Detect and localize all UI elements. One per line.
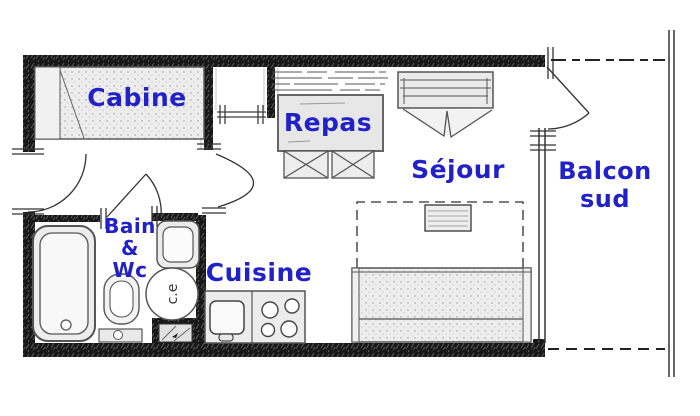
balcon-label-line2: sud <box>544 185 666 213</box>
room-label-cabine: Cabine <box>57 84 217 111</box>
sofa-armrest-left <box>352 268 359 342</box>
closet-rod <box>217 105 266 124</box>
balcony-railing <box>669 30 674 377</box>
room-label-repas: Repas <box>268 109 388 136</box>
sofa-bed <box>352 268 531 342</box>
wall-left-upper <box>23 55 35 152</box>
room-label-balcon-sud: Balcon sud <box>544 157 666 213</box>
bathtub-drain <box>61 320 71 330</box>
room-label-cuisine: Cuisine <box>198 259 320 286</box>
room-label-sejour: Séjour <box>396 156 520 183</box>
bain-label-line1: Bain <box>96 215 164 237</box>
entrance-door <box>12 149 86 214</box>
folding-bed-unit <box>398 72 493 137</box>
sofa-armrest-right <box>523 268 531 342</box>
technical-duct <box>159 324 192 342</box>
wall-bath-top-left <box>30 215 100 222</box>
floor-plan: c.e Cabine Repas Séjour Balcon sud Bain … <box>0 0 700 416</box>
entrance-door-arc <box>28 154 86 212</box>
toilet <box>99 274 142 342</box>
dining-chair-2 <box>332 151 374 178</box>
balcony-door-arc <box>548 113 589 129</box>
kitchen-counter <box>205 291 305 343</box>
hall-sejour-door <box>197 144 254 213</box>
balcon-label-line1: Balcon <box>544 157 666 185</box>
bathroom-door-panel <box>107 174 146 217</box>
wall-top <box>23 55 545 67</box>
kitchen-sink <box>210 301 244 334</box>
wall-bottom <box>23 343 545 357</box>
balcony-door-panel <box>547 67 589 113</box>
bain-label-line3: Wc <box>96 259 164 281</box>
room-label-bain-wc: Bain & Wc <box>96 215 164 281</box>
kitchen-tap <box>219 334 233 341</box>
hall-door-arc <box>216 154 254 207</box>
radiator <box>272 72 388 90</box>
dining-chair-1 <box>284 151 328 178</box>
bain-label-line2: & <box>96 237 164 259</box>
coffee-table <box>425 205 471 231</box>
water-heater-label: c.e <box>165 284 181 305</box>
bathroom-door-arc <box>146 174 161 217</box>
bathtub <box>33 226 95 341</box>
